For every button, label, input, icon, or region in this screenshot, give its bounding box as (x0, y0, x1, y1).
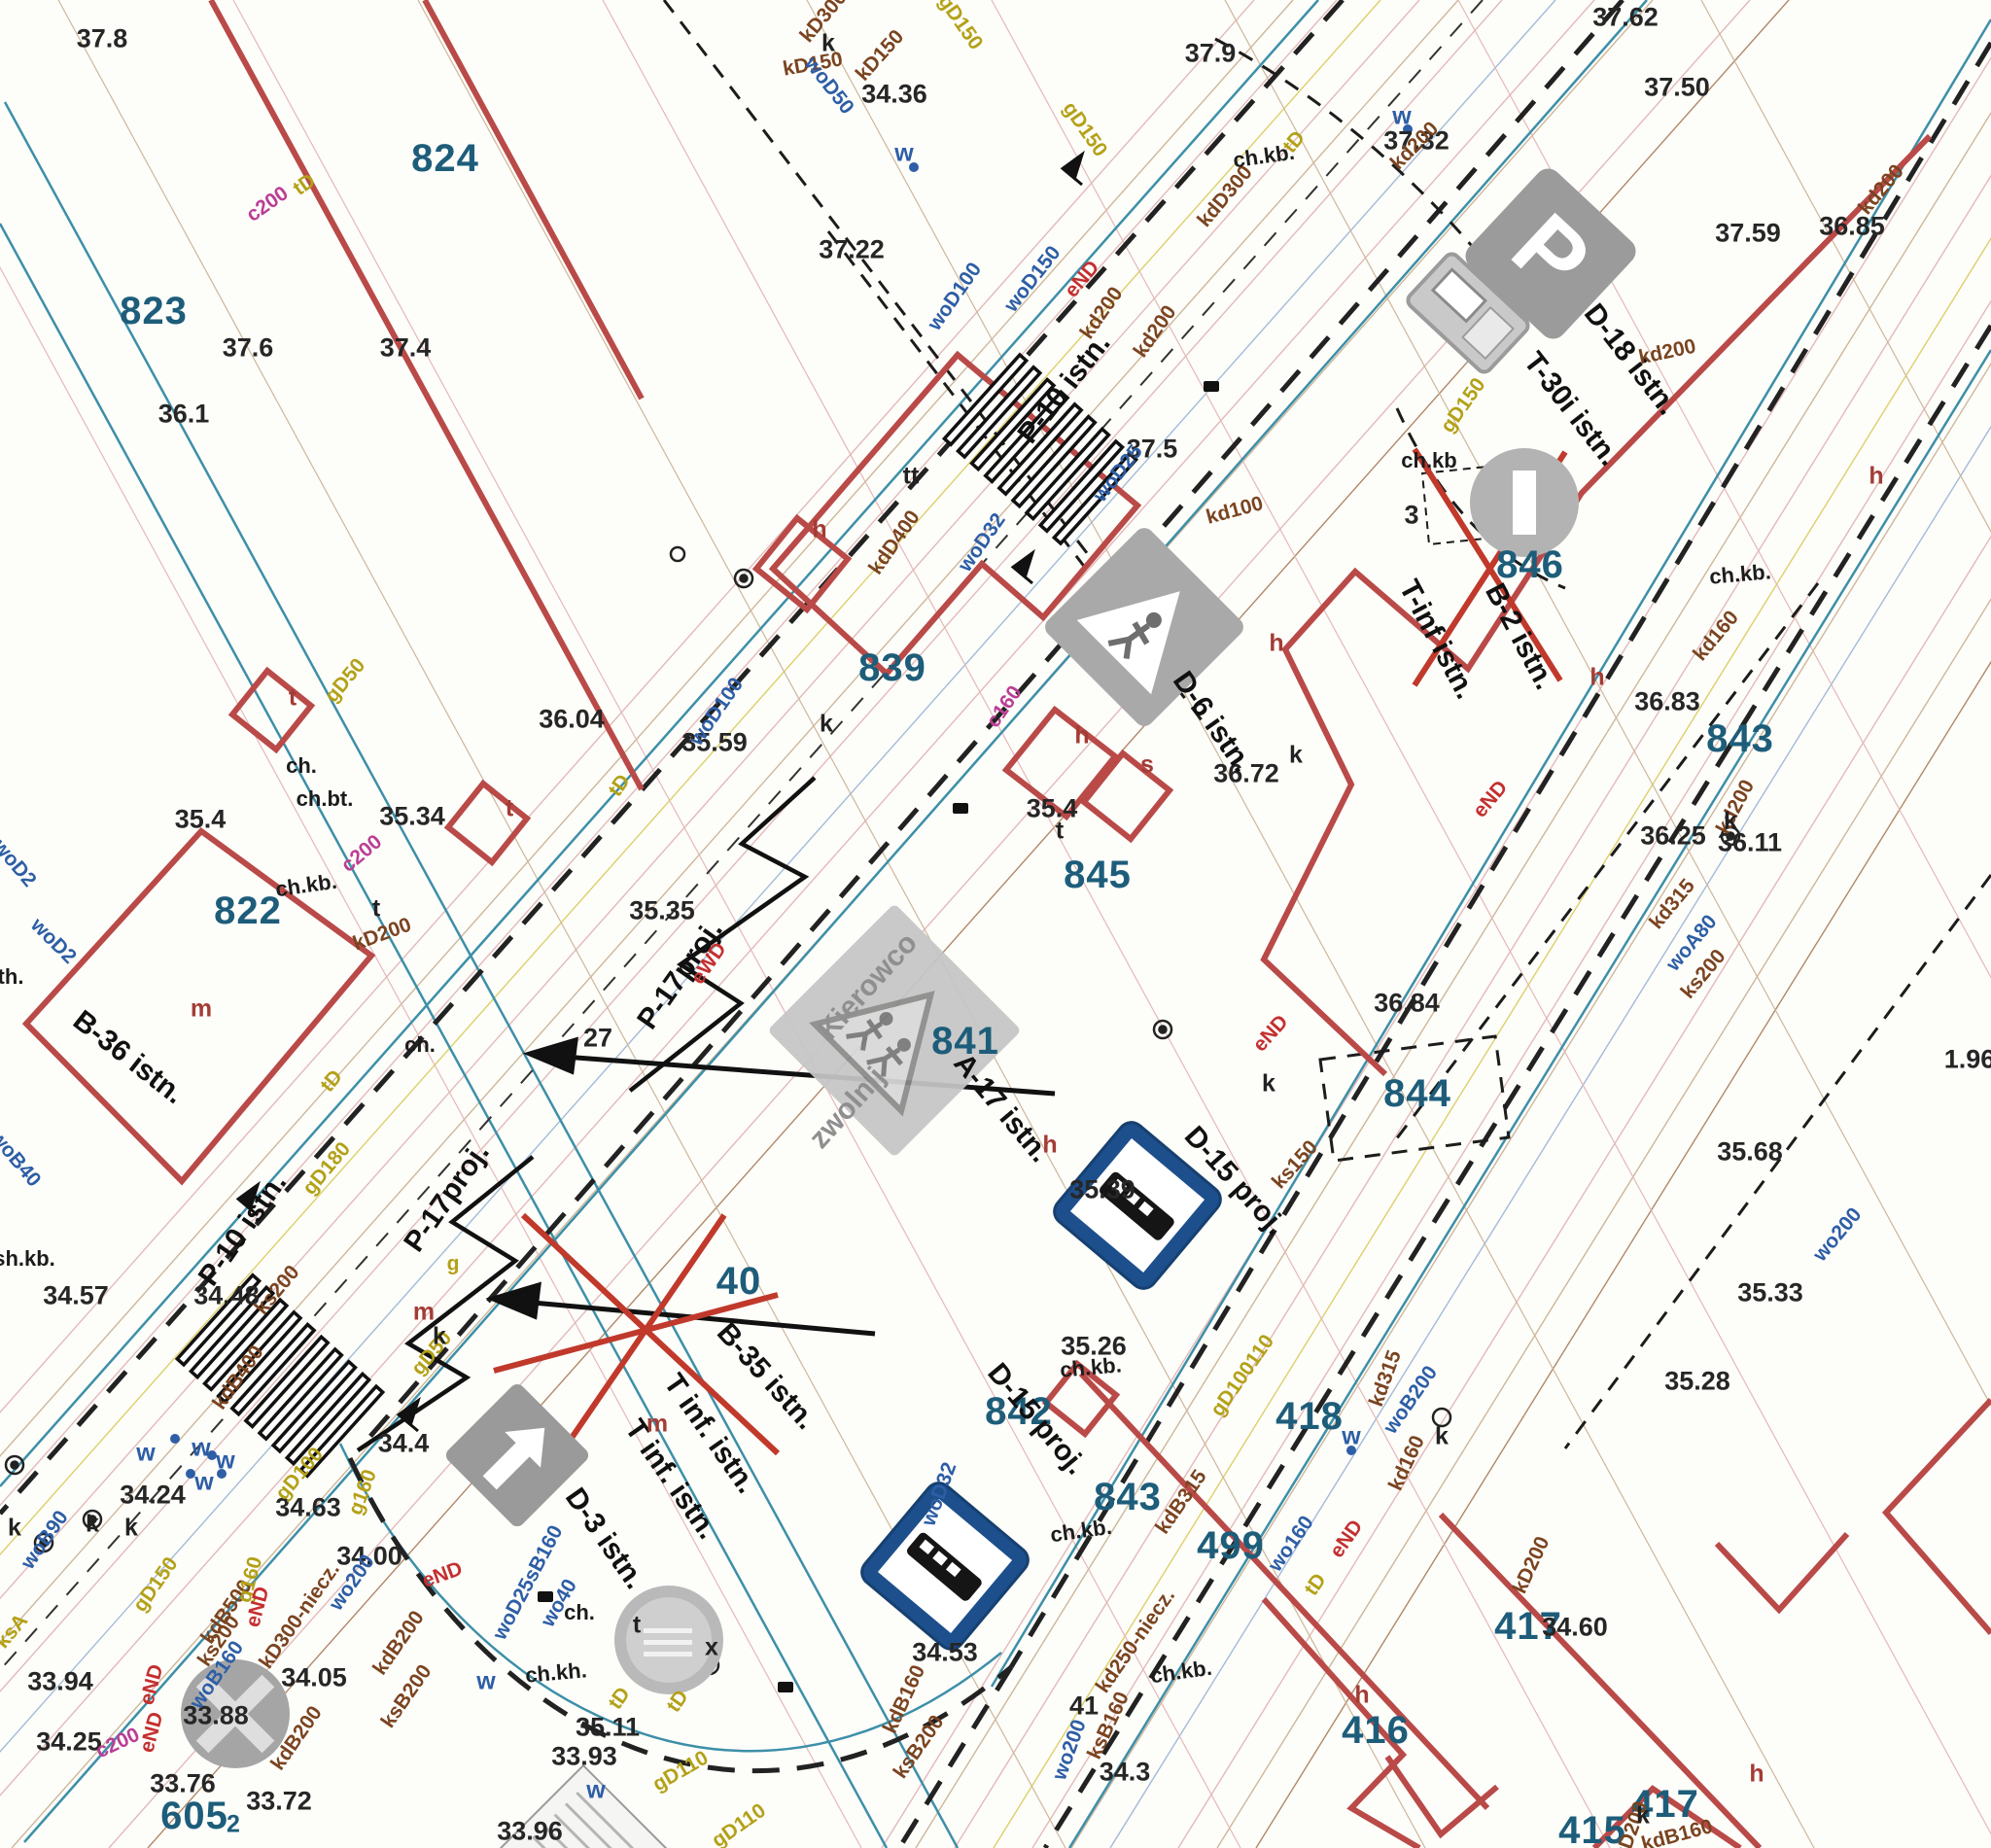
info-plate-icon (500, 1764, 668, 1848)
children-warning-board-a17-icon (767, 903, 1022, 1158)
one-way-sign-d3-icon (443, 1381, 592, 1530)
no-entry-bar (1513, 471, 1536, 535)
traffic-plan-map: P (0, 0, 1991, 1848)
b35-text-line (644, 1640, 692, 1645)
arrow-pictogram (443, 1381, 592, 1530)
no-stopping-sign-b35-icon (614, 1586, 723, 1694)
pedestrian-pictogram (1062, 544, 1227, 710)
children-pictogram (791, 927, 997, 1133)
parking-sign-letter: P (1491, 193, 1610, 314)
no-entry-sign-b2-icon (1470, 448, 1579, 557)
b35-text-line (644, 1628, 692, 1633)
bus-stop-sign-d15-icon-1 (1051, 1119, 1224, 1292)
van-window (1431, 267, 1487, 324)
b35-text-line (644, 1652, 692, 1656)
bus-stop-sign-d15-icon-2 (858, 1480, 1031, 1653)
traffic-sign-icons: P (0, 0, 1991, 1848)
pedestrian-crossing-sign-d6-icon (1041, 524, 1247, 730)
no-stopping-sign-b36-icon (181, 1659, 290, 1768)
